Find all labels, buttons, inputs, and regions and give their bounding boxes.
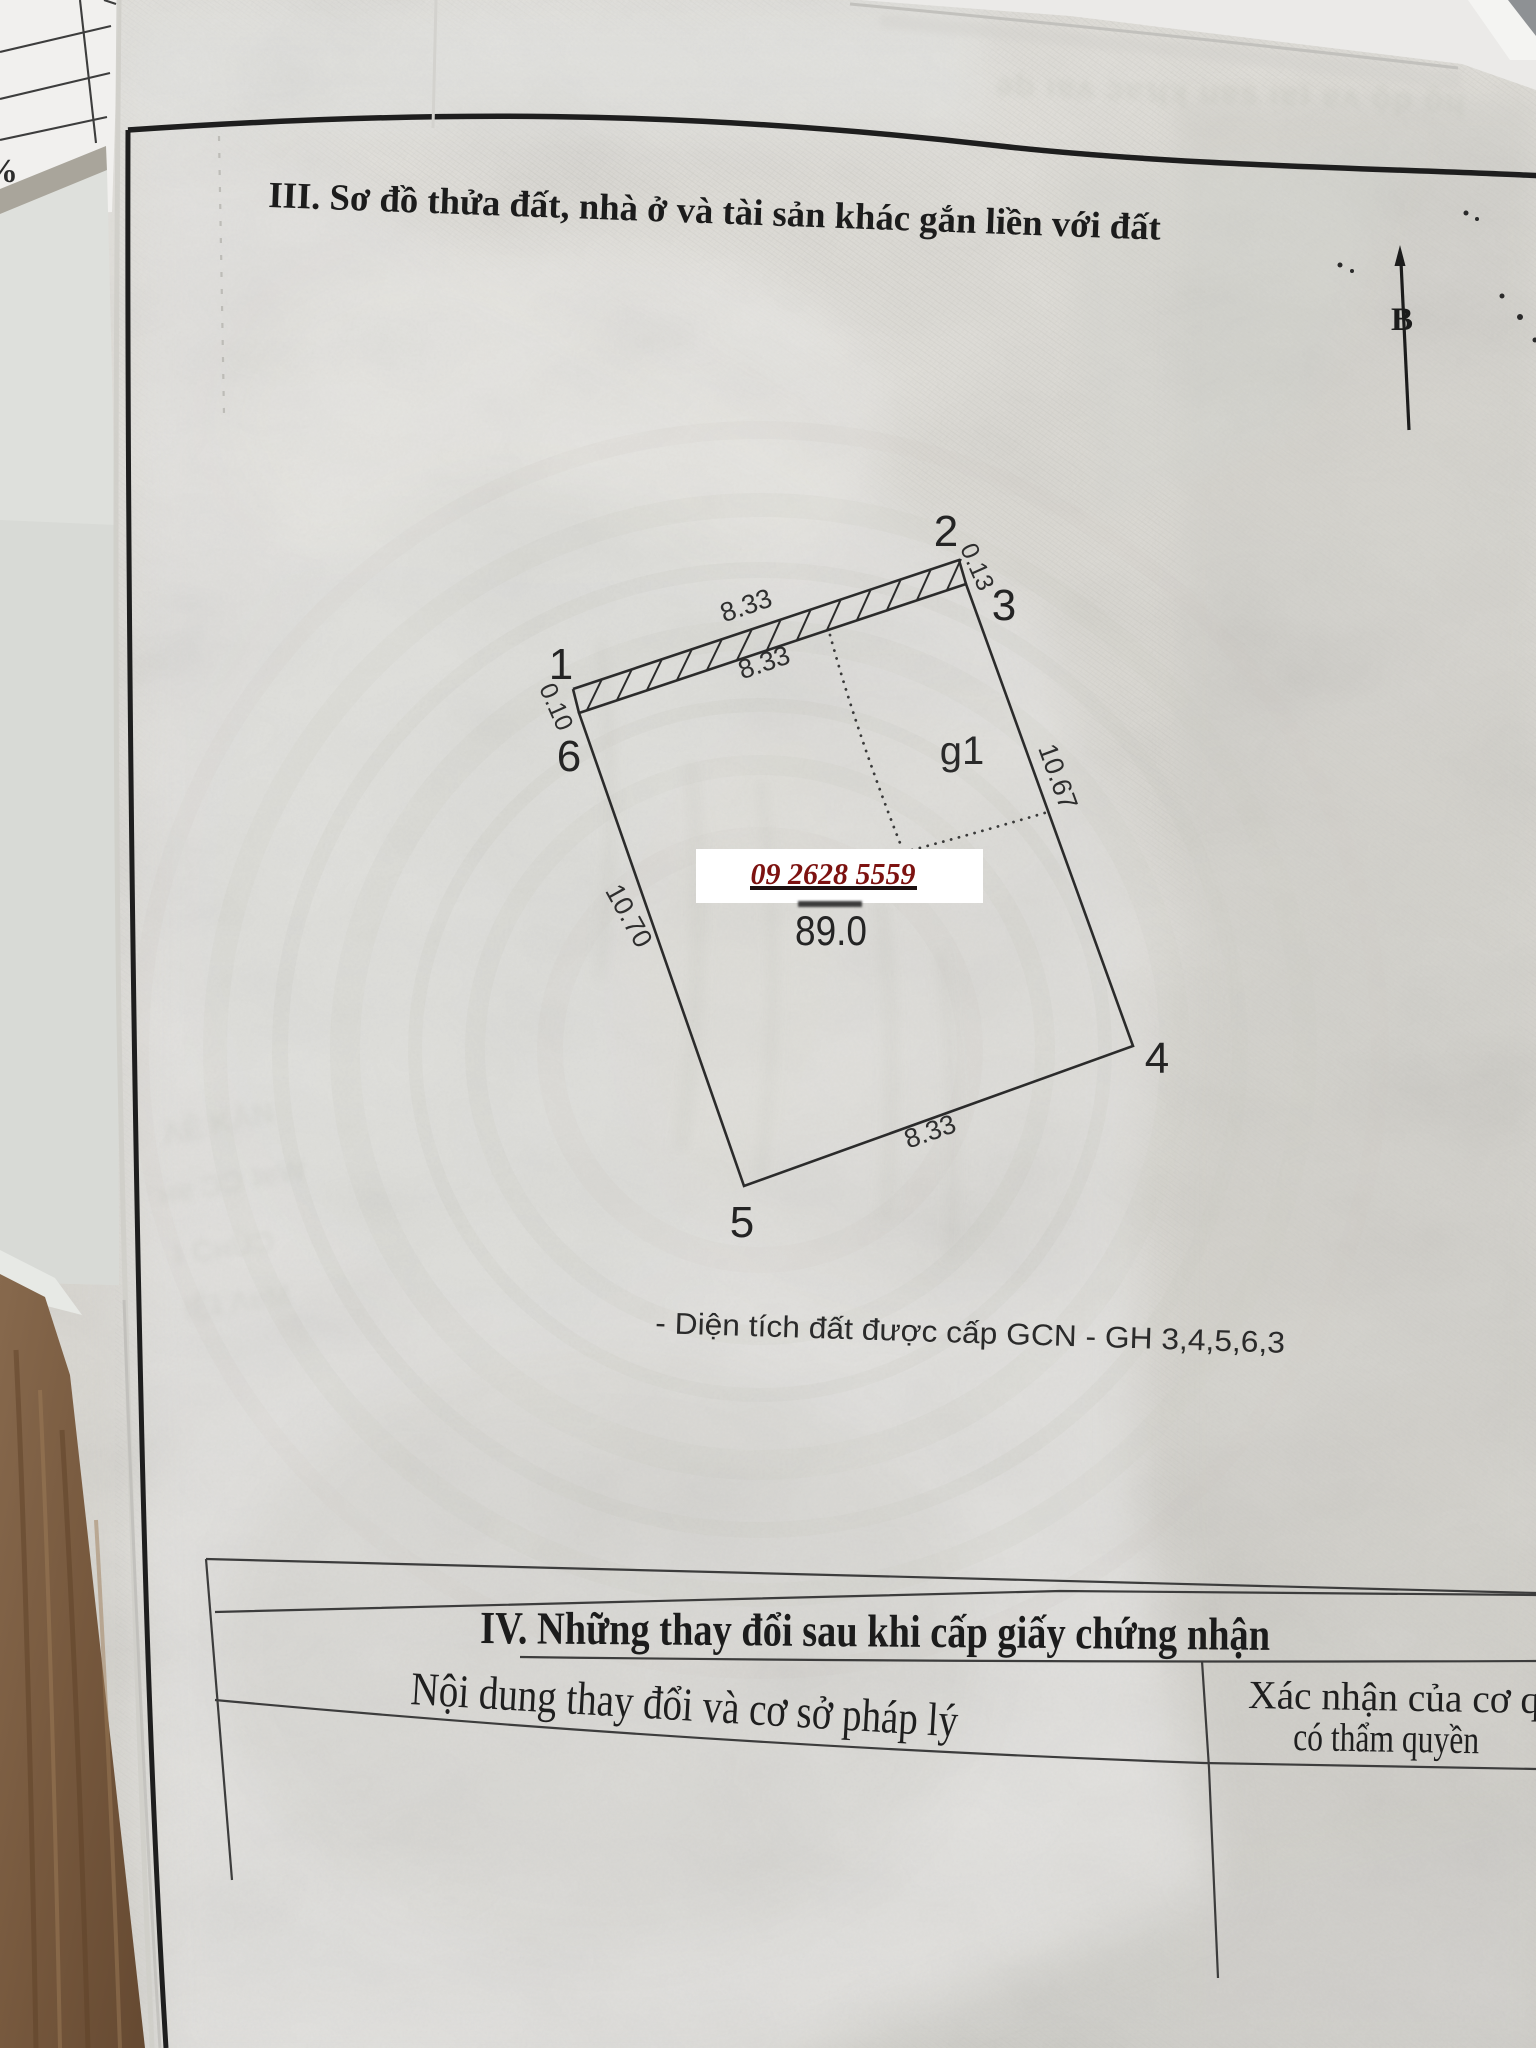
svg-text:4: 4 — [1145, 1034, 1169, 1083]
svg-text:Xác nhận của cơ q: Xác nhận của cơ q — [1248, 1672, 1536, 1722]
svg-text:89.0: 89.0 — [795, 907, 867, 954]
svg-text:có thẩm quyền: có thẩm quyền — [1293, 1714, 1480, 1762]
svg-text:5: 5 — [730, 1198, 754, 1247]
svg-text:6: 6 — [557, 732, 581, 781]
svg-text:09 2628 5559: 09 2628 5559 — [751, 856, 916, 891]
svg-text:g1: g1 — [940, 729, 985, 773]
svg-text:IV. Những thay đổi sau khi cấp: IV. Những thay đổi sau khi cấp giấy chứn… — [480, 1602, 1270, 1660]
svg-text:2: 2 — [934, 507, 958, 556]
svg-text:B: B — [1391, 302, 1413, 338]
svg-text:3: 3 — [992, 581, 1016, 630]
